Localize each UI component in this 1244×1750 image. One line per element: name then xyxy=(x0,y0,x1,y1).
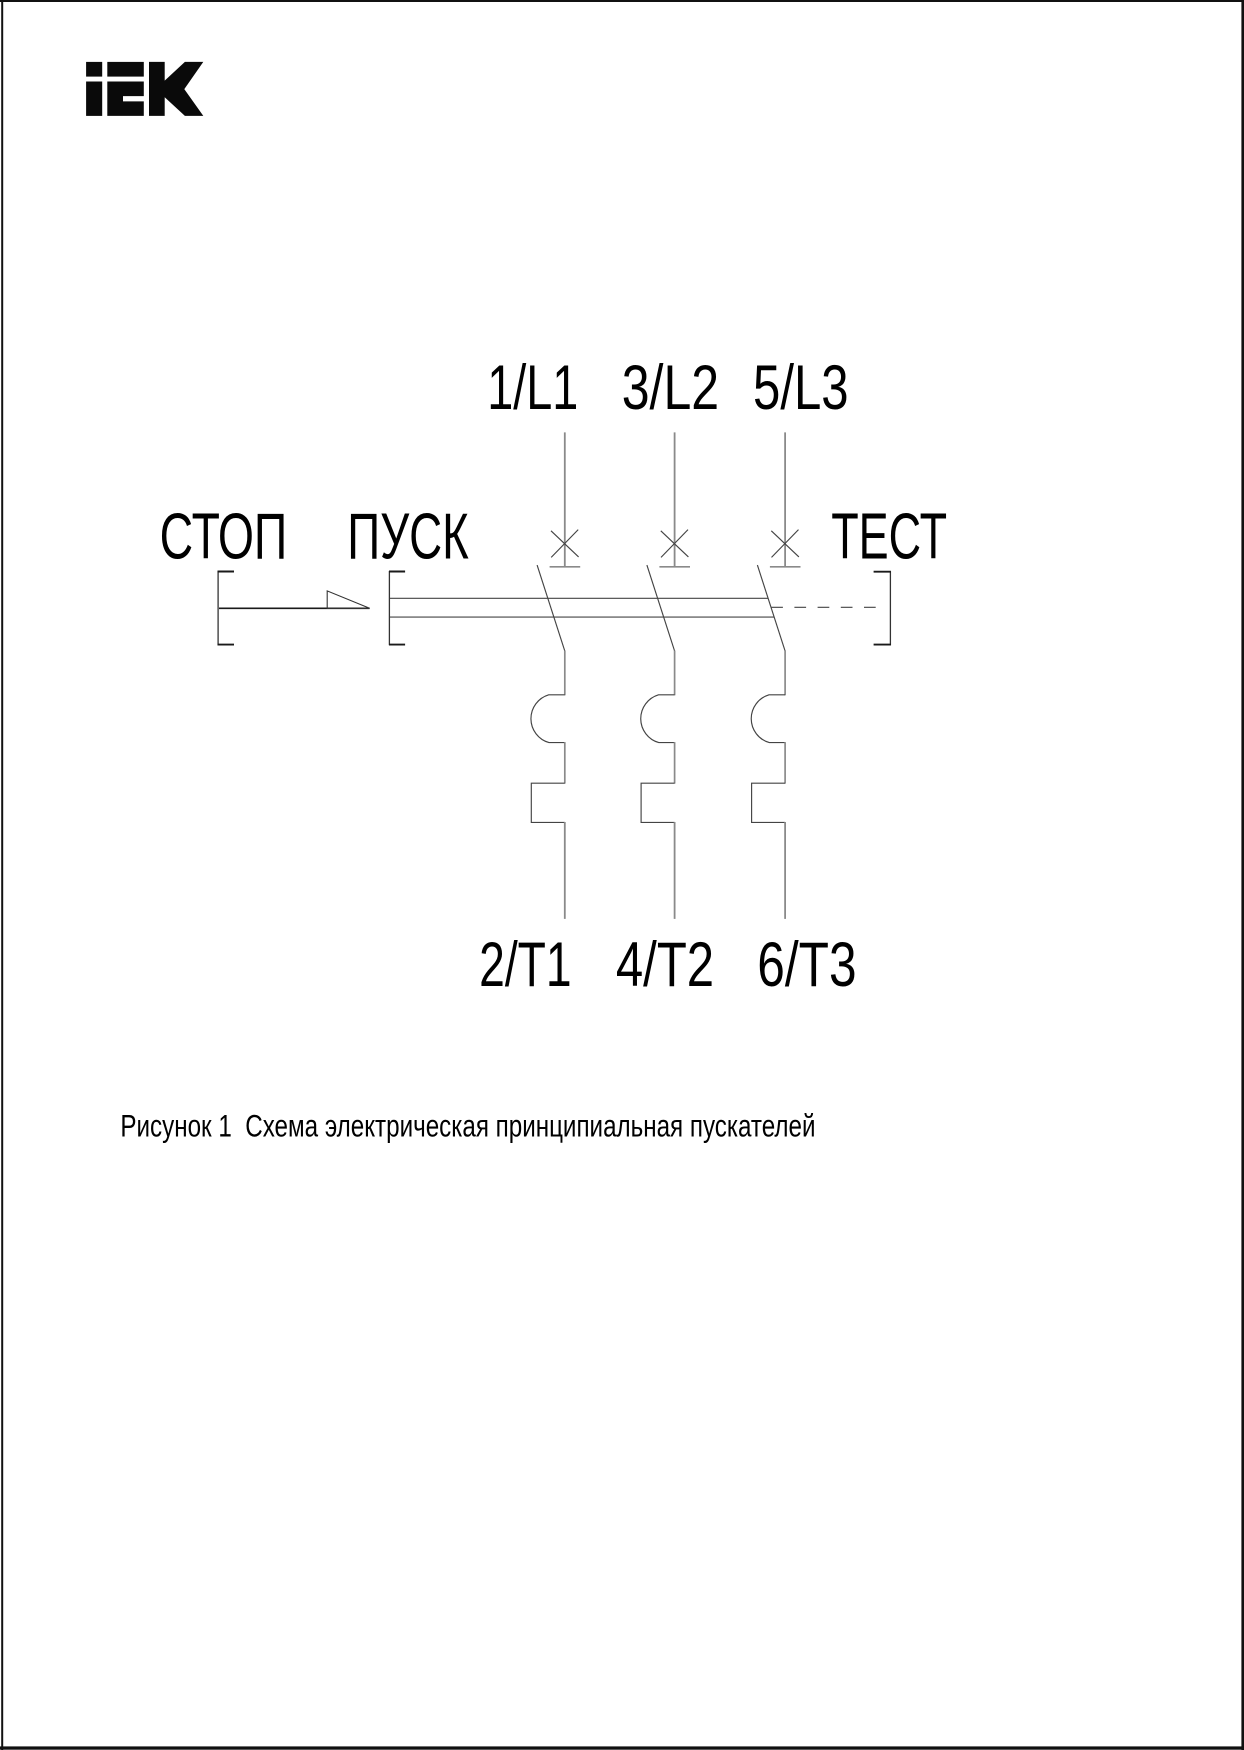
svg-text:ПУСК: ПУСК xyxy=(347,499,469,572)
svg-text:СТОП: СТОП xyxy=(160,500,288,573)
svg-text:4/T2: 4/T2 xyxy=(616,929,714,999)
svg-text:6/T3: 6/T3 xyxy=(757,930,856,1000)
svg-text:ТЕСТ: ТЕСТ xyxy=(831,499,947,572)
svg-text:5/L3: 5/L3 xyxy=(753,352,849,422)
svg-text:2/T1: 2/T1 xyxy=(479,929,572,1000)
svg-text:1/L1: 1/L1 xyxy=(487,352,578,422)
svg-text:Рисунок 1 Схема электрическая: Рисунок 1 Схема электрическая принципиал… xyxy=(120,1109,815,1144)
svg-text:3/L2: 3/L2 xyxy=(622,353,719,424)
